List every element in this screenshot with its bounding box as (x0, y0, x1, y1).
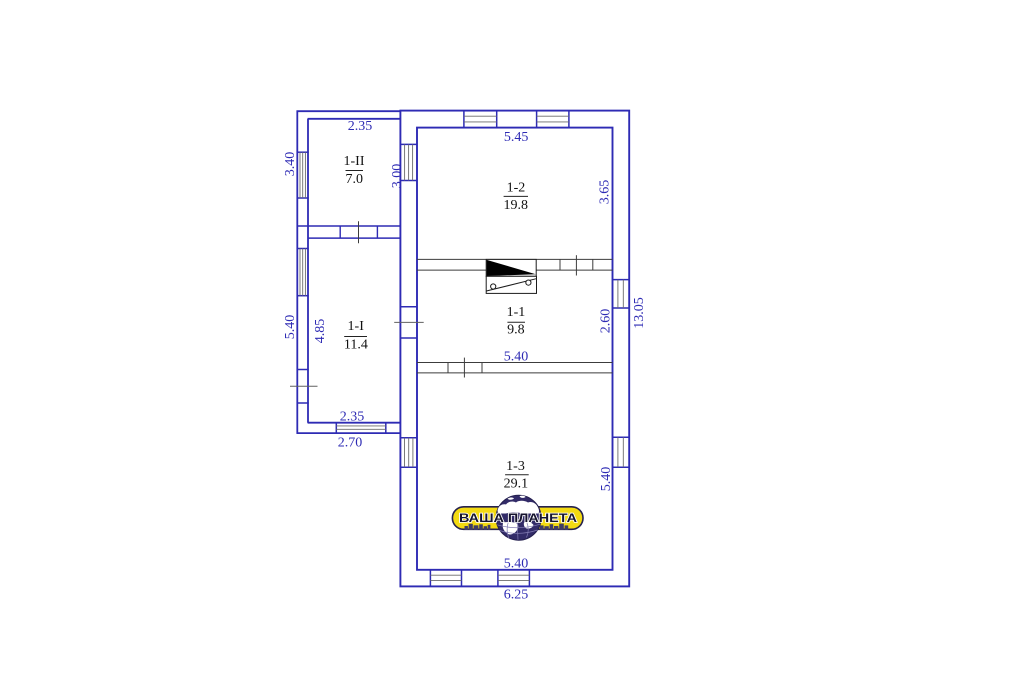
svg-text:1-3: 1-3 (506, 459, 525, 474)
svg-text:1-II: 1-II (344, 154, 365, 169)
svg-text:9.8: 9.8 (507, 323, 525, 338)
svg-text:7.0: 7.0 (346, 172, 364, 187)
svg-text:29.1: 29.1 (504, 476, 529, 491)
svg-text:1-I: 1-I (348, 319, 365, 334)
svg-text:4.85: 4.85 (313, 319, 328, 344)
svg-text:3.40: 3.40 (283, 152, 298, 177)
svg-text:1-1: 1-1 (507, 305, 526, 320)
svg-text:3.00: 3.00 (390, 164, 405, 189)
svg-text:2.70: 2.70 (338, 436, 363, 451)
svg-text:5.40: 5.40 (504, 557, 529, 572)
svg-text:2.35: 2.35 (348, 119, 373, 134)
svg-text:5.45: 5.45 (504, 130, 529, 145)
svg-text:6.25: 6.25 (504, 588, 529, 603)
svg-text:19.8: 19.8 (503, 198, 528, 213)
svg-text:ВАША ПЛАНЕТА: ВАША ПЛАНЕТА (459, 511, 577, 525)
svg-text:13.05: 13.05 (632, 297, 647, 329)
svg-text:5.40: 5.40 (504, 350, 529, 365)
svg-text:11.4: 11.4 (344, 337, 368, 352)
svg-text:5.40: 5.40 (283, 315, 298, 340)
svg-text:1-2: 1-2 (507, 181, 526, 196)
svg-text:3.65: 3.65 (598, 180, 613, 205)
svg-text:2.35: 2.35 (340, 410, 365, 425)
svg-text:2.60: 2.60 (599, 309, 614, 334)
svg-text:5.40: 5.40 (599, 467, 614, 492)
